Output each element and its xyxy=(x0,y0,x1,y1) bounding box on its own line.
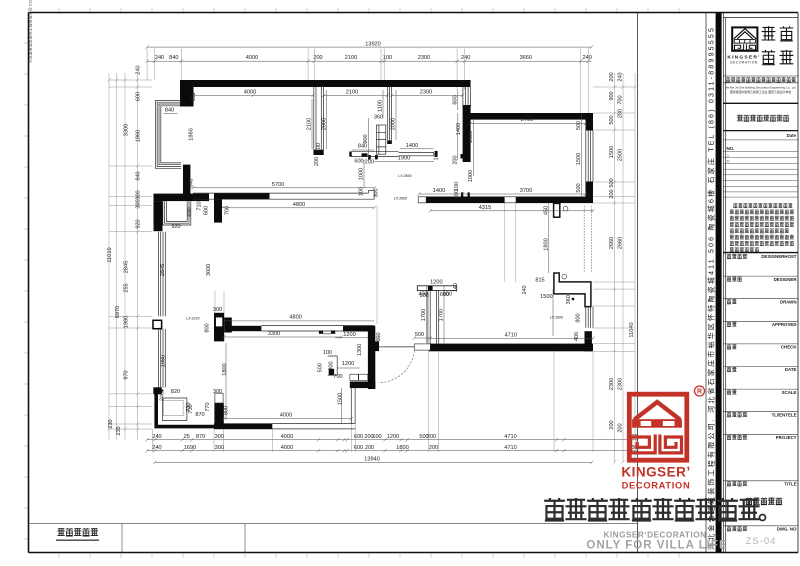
svg-text:1000: 1000 xyxy=(359,168,365,180)
svg-text:840: 840 xyxy=(136,171,142,180)
svg-text:3700: 3700 xyxy=(520,188,532,194)
svg-text:1600: 1600 xyxy=(468,131,474,143)
svg-text:KINGSERʼ: KINGSERʼ xyxy=(621,465,690,480)
svg-text:4710: 4710 xyxy=(504,434,516,440)
svg-text:1000: 1000 xyxy=(468,170,474,182)
svg-text:600: 600 xyxy=(443,292,452,298)
svg-text:DESIGNER: DESIGNER xyxy=(774,277,798,282)
svg-text:LX:2x20: LX:2x20 xyxy=(186,317,199,321)
svg-text:600: 600 xyxy=(191,92,197,101)
svg-text:2660: 2660 xyxy=(618,237,624,249)
svg-text:1800: 1800 xyxy=(396,445,408,451)
svg-text:970: 970 xyxy=(124,370,130,379)
svg-text:1500: 1500 xyxy=(338,393,344,405)
svg-text:1700: 1700 xyxy=(439,309,445,321)
svg-text:840: 840 xyxy=(189,178,195,187)
svg-text:500: 500 xyxy=(415,332,424,338)
svg-text:500: 500 xyxy=(576,183,582,192)
svg-text:1400: 1400 xyxy=(406,143,418,149)
svg-text:1500: 1500 xyxy=(609,146,615,158)
svg-text:5700: 5700 xyxy=(272,182,284,188)
svg-text:国家级室内装饰乙级施工企业 国家乙级设计单位: 国家级室内装饰乙级施工企业 国家乙级设计单位 xyxy=(730,89,792,94)
svg-text:1200: 1200 xyxy=(343,332,355,338)
svg-text:2660: 2660 xyxy=(609,237,615,249)
svg-text:240: 240 xyxy=(461,55,470,61)
svg-text:600: 600 xyxy=(376,332,382,341)
svg-text:2000: 2000 xyxy=(391,118,397,130)
svg-text:河北金舍建筑装饰工程有限公司. 河北省石家庄市裕华区怀特陶瓷: 河北金舍建筑装饰工程有限公司. 河北省石家庄市裕华区怀特陶瓷城411 506 陶… xyxy=(707,26,716,550)
svg-text:200: 200 xyxy=(427,434,436,440)
svg-text:4000: 4000 xyxy=(280,413,292,419)
svg-text:360: 360 xyxy=(374,115,383,121)
svg-text:500: 500 xyxy=(609,178,615,187)
svg-text:DWG. NO: DWG. NO xyxy=(777,527,797,532)
svg-text:255: 255 xyxy=(124,283,130,292)
svg-text:200: 200 xyxy=(454,190,460,199)
svg-text:13920: 13920 xyxy=(365,41,381,47)
svg-text:500: 500 xyxy=(576,121,582,130)
svg-text:LX:2600: LX:2600 xyxy=(550,316,563,320)
svg-text:1700: 1700 xyxy=(421,309,427,321)
svg-text:11010: 11010 xyxy=(107,247,113,262)
svg-text:840: 840 xyxy=(169,55,178,61)
svg-text:ZS-04: ZS-04 xyxy=(746,536,777,547)
svg-text:400: 400 xyxy=(574,332,580,341)
svg-text:2100: 2100 xyxy=(346,89,358,95)
svg-text:4710: 4710 xyxy=(505,332,517,338)
svg-text:500: 500 xyxy=(609,115,615,124)
svg-text:DECORATION: DECORATION xyxy=(622,481,691,491)
svg-text:300: 300 xyxy=(215,434,224,440)
svg-text:900: 900 xyxy=(363,134,369,143)
svg-text:NO.: NO. xyxy=(727,146,735,151)
svg-text:2300: 2300 xyxy=(618,378,624,390)
svg-text:2500: 2500 xyxy=(618,149,624,161)
svg-text:240: 240 xyxy=(152,445,161,451)
svg-text:800: 800 xyxy=(576,313,582,322)
svg-text:ONLY FOR VILLA LIFE: ONLY FOR VILLA LIFE xyxy=(586,540,727,552)
svg-text:2845: 2845 xyxy=(124,261,130,273)
svg-text:700: 700 xyxy=(618,95,624,104)
svg-text:4800: 4800 xyxy=(289,314,301,320)
svg-text:X:: X: xyxy=(727,159,730,163)
svg-text:1300: 1300 xyxy=(357,344,363,356)
svg-text:APPROVED: APPROVED xyxy=(772,322,797,327)
svg-text:LX:2600: LX:2600 xyxy=(394,197,407,201)
svg-text:4000: 4000 xyxy=(281,434,293,440)
svg-text:730: 730 xyxy=(188,404,194,413)
svg-text:600: 600 xyxy=(452,95,458,104)
svg-text:CHECK: CHECK xyxy=(781,345,797,350)
svg-text:840: 840 xyxy=(165,107,174,113)
svg-text:900: 900 xyxy=(609,91,615,100)
svg-text:200: 200 xyxy=(609,72,615,81)
svg-text:500: 500 xyxy=(318,363,324,372)
svg-text:1860: 1860 xyxy=(136,130,142,142)
svg-text:690: 690 xyxy=(187,207,193,216)
svg-text:820: 820 xyxy=(171,389,180,395)
svg-text:870: 870 xyxy=(196,434,205,440)
svg-text:710: 710 xyxy=(197,201,203,210)
svg-text:600: 600 xyxy=(204,206,210,215)
svg-text:4000: 4000 xyxy=(281,445,293,451)
svg-text:800: 800 xyxy=(224,406,230,415)
svg-text:870: 870 xyxy=(195,412,204,418)
svg-text:3300: 3300 xyxy=(268,331,280,337)
svg-text:3660: 3660 xyxy=(520,55,532,61)
svg-text:240: 240 xyxy=(160,392,166,401)
svg-text:2300: 2300 xyxy=(418,55,430,61)
svg-text:4315: 4315 xyxy=(479,205,491,211)
svg-text:1500: 1500 xyxy=(576,153,582,165)
svg-text:LX:2600: LX:2600 xyxy=(398,174,411,178)
svg-text:360: 360 xyxy=(566,295,572,304)
svg-text:1200: 1200 xyxy=(430,280,442,286)
svg-text:230: 230 xyxy=(108,419,114,428)
svg-text:300: 300 xyxy=(215,445,224,451)
svg-text:800: 800 xyxy=(329,361,335,370)
svg-text:300: 300 xyxy=(136,190,142,199)
svg-text:河北金舍建筑装饰工程有限公司 0311-88995555: 河北金舍建筑装饰工程有限公司 0311-88995555 xyxy=(28,0,33,63)
svg-text:240: 240 xyxy=(618,72,624,81)
svg-text:1900: 1900 xyxy=(398,156,410,162)
svg-text:600: 600 xyxy=(136,92,142,101)
svg-text:1980: 1980 xyxy=(161,355,167,367)
svg-text:DATE: DATE xyxy=(785,367,797,372)
svg-text:11040: 11040 xyxy=(629,322,635,337)
svg-text:300: 300 xyxy=(136,199,142,208)
svg-text:6970: 6970 xyxy=(115,306,121,318)
svg-text:2300: 2300 xyxy=(420,89,432,95)
svg-text:800: 800 xyxy=(205,323,211,332)
svg-text:600: 600 xyxy=(354,158,363,164)
svg-text:200: 200 xyxy=(313,55,322,61)
svg-text:100: 100 xyxy=(434,151,440,160)
svg-text:920: 920 xyxy=(171,224,180,230)
svg-text:2100: 2100 xyxy=(307,118,313,130)
svg-text:200: 200 xyxy=(452,155,458,164)
svg-text:1800: 1800 xyxy=(222,363,228,375)
svg-text:13940: 13940 xyxy=(364,457,380,463)
svg-text:100: 100 xyxy=(316,143,322,152)
svg-text:400: 400 xyxy=(418,292,427,298)
svg-text:920: 920 xyxy=(136,219,142,228)
svg-text:240: 240 xyxy=(155,55,164,61)
svg-text:4000: 4000 xyxy=(246,55,258,61)
svg-text:DECORATION: DECORATION xyxy=(730,60,758,64)
svg-text:4000: 4000 xyxy=(244,89,256,95)
svg-text:200: 200 xyxy=(365,160,374,166)
svg-text:PROJECT: PROJECT xyxy=(776,435,797,440)
svg-text:300: 300 xyxy=(373,188,379,197)
svg-text:200: 200 xyxy=(618,109,624,118)
svg-text:2100: 2100 xyxy=(345,55,357,61)
svg-text:700: 700 xyxy=(225,206,231,215)
svg-text:1800: 1800 xyxy=(544,238,550,250)
svg-text:1500: 1500 xyxy=(540,294,552,300)
svg-text:1400: 1400 xyxy=(456,123,462,135)
svg-text:240: 240 xyxy=(522,285,528,294)
svg-text:700: 700 xyxy=(333,374,342,380)
svg-text:Date: Date xyxy=(787,133,797,138)
svg-text:TL‖ENTELE: TL‖ENTELE xyxy=(772,412,797,417)
svg-text:240: 240 xyxy=(152,434,161,440)
svg-text:230: 230 xyxy=(116,426,122,435)
svg-text:200: 200 xyxy=(609,420,615,429)
svg-text:770: 770 xyxy=(205,402,211,411)
svg-text:3000: 3000 xyxy=(206,264,212,276)
svg-text:25: 25 xyxy=(184,434,190,440)
svg-text:240: 240 xyxy=(136,65,142,74)
svg-text:100: 100 xyxy=(323,350,332,356)
svg-text:100: 100 xyxy=(372,434,381,440)
svg-text:1100: 1100 xyxy=(378,100,384,112)
svg-text:450: 450 xyxy=(544,206,550,215)
svg-text:240: 240 xyxy=(583,55,592,61)
svg-text:3700: 3700 xyxy=(521,117,533,123)
svg-text:SCALE: SCALE xyxy=(782,390,797,395)
svg-text:200: 200 xyxy=(609,189,615,198)
svg-text:He Bei Jin She Building Decora: He Bei Jin She Building Decoration Engin… xyxy=(726,85,796,89)
svg-text:200: 200 xyxy=(314,157,320,166)
svg-text:200: 200 xyxy=(365,445,374,451)
svg-text:100: 100 xyxy=(359,187,365,196)
svg-text:1860: 1860 xyxy=(189,128,195,140)
svg-text:1200: 1200 xyxy=(387,434,399,440)
svg-text:DRAWN: DRAWN xyxy=(780,299,797,304)
svg-text:200: 200 xyxy=(618,423,624,432)
svg-text:4800: 4800 xyxy=(293,202,305,208)
svg-text:1980: 1980 xyxy=(124,316,130,328)
svg-text:300: 300 xyxy=(213,389,222,395)
svg-text:R: R xyxy=(697,389,702,396)
svg-text:100: 100 xyxy=(454,182,460,191)
svg-text:TITLE: TITLE xyxy=(784,482,796,487)
svg-text:140: 140 xyxy=(453,283,459,292)
svg-text:DESIGNERHOST: DESIGNERHOST xyxy=(761,254,796,259)
svg-text:1690: 1690 xyxy=(184,445,196,451)
svg-text:4710: 4710 xyxy=(504,445,516,451)
svg-text:3300: 3300 xyxy=(124,124,130,136)
svg-text:1400: 1400 xyxy=(433,188,445,194)
svg-text:2000: 2000 xyxy=(322,118,328,130)
svg-text:2845: 2845 xyxy=(160,264,166,276)
svg-text:1200: 1200 xyxy=(342,361,354,367)
svg-text:KINGSERʼDECORATION: KINGSERʼDECORATION xyxy=(603,531,706,540)
svg-text:2300: 2300 xyxy=(609,378,615,390)
svg-text:815: 815 xyxy=(535,278,544,284)
svg-text:200: 200 xyxy=(429,445,438,451)
svg-text:300: 300 xyxy=(213,307,222,313)
